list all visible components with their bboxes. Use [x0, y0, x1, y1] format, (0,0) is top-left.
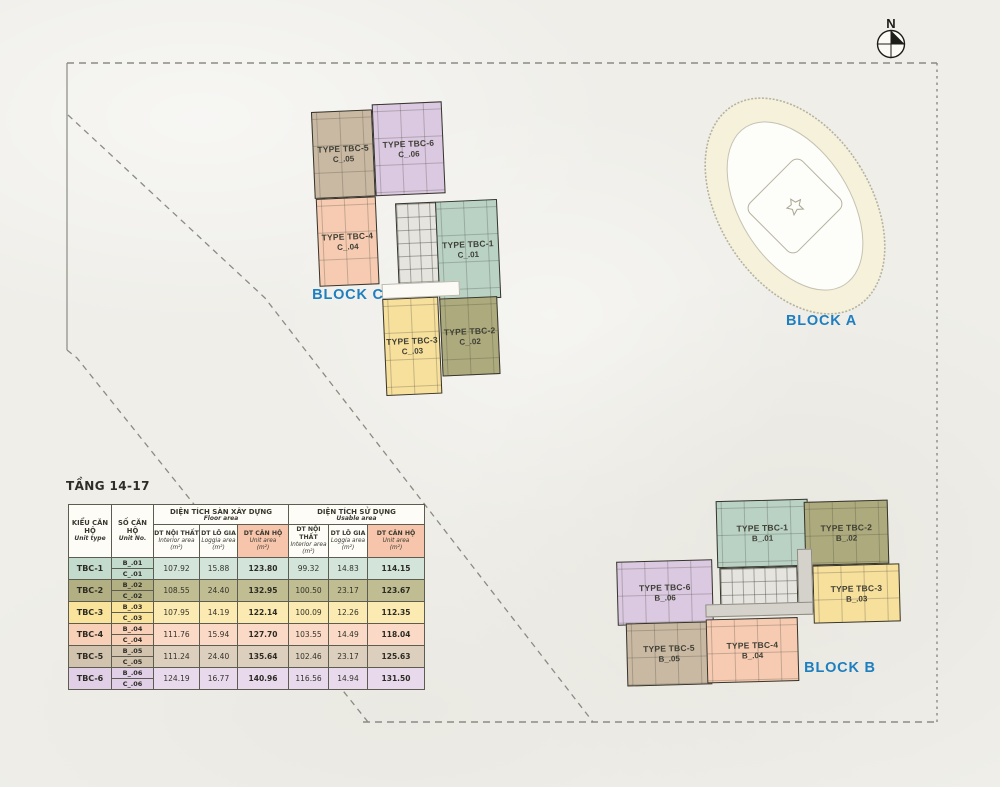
unit-b04-tbc4: TYPE TBC-4 B_.04: [706, 617, 800, 683]
header-group-floor-area: DIỆN TÍCH SÀN XÂY DỰNG Floor area: [154, 505, 289, 525]
unit-type-label: TYPE TBC-5: [643, 643, 695, 655]
row-unit-numbers: B_.04 C_.04: [112, 624, 154, 646]
unit-b05-tbc5: TYPE TBC-5 B_.05: [626, 621, 713, 686]
floor-loggia-value: 15.88: [200, 558, 238, 580]
sub-interior-unit: (m²): [289, 549, 328, 556]
header-group-usable-en: Usable area: [289, 516, 424, 522]
usable-loggia-value: 12.26: [329, 602, 368, 624]
usable-interior-value: 102.46: [289, 646, 329, 668]
row-unit-numbers: B_.01 C_.01: [112, 558, 154, 580]
unit-number-label: B_.04: [742, 650, 764, 660]
sub-interior-en: Interior area: [289, 542, 328, 549]
sub-unit-vi: DT CĂN HỘ: [377, 530, 416, 537]
sub-loggia-vi: DT LÔ GIA: [201, 530, 236, 537]
header-floor-interior: DT NỘI THẤT Interior area (m²): [154, 525, 200, 558]
sub-interior-vi: DT NỘI THẤT: [296, 526, 320, 541]
header-unit-no-vi: SỐ CĂN HỘ: [118, 519, 147, 535]
usable-unit-area-value: 125.63: [368, 646, 425, 668]
unit-area-table: KIỂU CĂN HỘ Unit type SỐ CĂN HỘ Unit No.…: [68, 504, 425, 690]
header-unit-type-vi: KIỂU CĂN HỘ: [72, 519, 108, 535]
floor-unit-area-value: 127.70: [238, 624, 289, 646]
unit-number-label: B_.06: [654, 593, 676, 603]
row-unit-numbers: B_.03 C_.03: [112, 602, 154, 624]
unit-no-c: C_.05: [112, 657, 153, 667]
block-a-outer-ellipse: [668, 66, 922, 347]
unit-type-label: TYPE TBC-4: [726, 639, 778, 651]
header-usable-interior: DT NỘI THẤT Interior area (m²): [289, 525, 329, 558]
sub-loggia-unit: (m²): [200, 545, 237, 552]
unit-no-b: B_.03: [112, 602, 153, 613]
compass-circle: [878, 31, 905, 58]
unit-no-b: B_.01: [112, 558, 153, 569]
sub-loggia-vi: DT LÔ GIA: [331, 530, 366, 537]
table-row-tbc6: TBC-6 B_.06 C_.06 124.19 16.77 140.96 11…: [69, 668, 425, 690]
unit-type-label: TYPE TBC-6: [639, 582, 691, 594]
unit-no-b: B_.06: [112, 668, 153, 679]
unit-number-label: C_.06: [398, 149, 420, 160]
table-row-tbc3: TBC-3 B_.03 C_.03 107.95 14.19 122.14 10…: [69, 602, 425, 624]
sub-unit-en: Unit area: [368, 538, 424, 545]
unit-number-label: B_.03: [846, 594, 868, 604]
unit-c06-tbc6: TYPE TBC-6 C_.06: [372, 101, 446, 196]
sub-unit-en: Unit area: [238, 538, 288, 545]
floor-interior-value: 107.92: [154, 558, 200, 580]
usable-unit-area-value: 118.04: [368, 624, 425, 646]
unit-number-label: B_.02: [836, 533, 858, 543]
floor-unit-area-value: 132.95: [238, 580, 289, 602]
usable-interior-value: 103.55: [289, 624, 329, 646]
floor-loggia-value: 24.40: [200, 646, 238, 668]
usable-loggia-value: 14.49: [329, 624, 368, 646]
unit-number-label: C_.04: [337, 242, 359, 253]
floor-interior-value: 124.19: [154, 668, 200, 690]
row-unit-type: TBC-3: [69, 602, 112, 624]
header-group-floor-en: Floor area: [154, 516, 288, 522]
unit-c03-tbc3: TYPE TBC-3 C_.03: [382, 297, 442, 396]
sub-unit-vi: DT CĂN HỘ: [244, 530, 283, 537]
table-row-tbc5: TBC-5 B_.05 C_.05 111.24 24.40 135.64 10…: [69, 646, 425, 668]
row-unit-numbers: B_.06 C_.06: [112, 668, 154, 690]
usable-loggia-value: 14.83: [329, 558, 368, 580]
unit-b06-tbc6: TYPE TBC-6 B_.06: [616, 559, 714, 625]
sub-loggia-unit: (m²): [329, 545, 367, 552]
usable-unit-area-value: 123.67: [368, 580, 425, 602]
header-floor-unit-area: DT CĂN HỘ Unit area (m²): [238, 525, 289, 558]
sub-loggia-en: Loggia area: [200, 538, 237, 545]
floor-interior-value: 111.24: [154, 646, 200, 668]
unit-number-label: C_.03: [402, 346, 424, 357]
usable-interior-value: 100.50: [289, 580, 329, 602]
floor-unit-area-value: 140.96: [238, 668, 289, 690]
usable-unit-area-value: 112.35: [368, 602, 425, 624]
row-unit-type: TBC-2: [69, 580, 112, 602]
usable-loggia-value: 14.94: [329, 668, 368, 690]
sub-unit-unit: (m²): [238, 545, 288, 552]
north-label: N: [886, 16, 895, 31]
unit-number-label: C_.01: [457, 250, 479, 261]
unit-no-b: B_.02: [112, 580, 153, 591]
sub-interior-unit: (m²): [154, 545, 199, 552]
header-usable-loggia: DT LÔ GIA Loggia area (m²): [329, 525, 368, 558]
unit-number-label: C_.05: [333, 154, 355, 165]
unit-no-c: C_.02: [112, 591, 153, 601]
block-c-label: BLOCK C: [312, 287, 384, 303]
unit-number-label: B_.01: [752, 534, 774, 544]
floor-loggia-value: 15.94: [200, 624, 238, 646]
header-unit-no-en: Unit No.: [112, 535, 153, 543]
unit-number-label: C_.02: [459, 336, 481, 347]
compass-north-pointer: [891, 31, 905, 45]
block-b-label: BLOCK B: [800, 660, 880, 676]
floor-interior-value: 111.76: [154, 624, 200, 646]
header-floor-loggia: DT LÔ GIA Loggia area (m²): [200, 525, 238, 558]
row-unit-numbers: B_.05 C_.05: [112, 646, 154, 668]
table-row-tbc4: TBC-4 B_.04 C_.04 111.76 15.94 127.70 10…: [69, 624, 425, 646]
unit-b01-tbc1: TYPE TBC-1 B_.01: [716, 499, 810, 568]
block-a-center-star: [784, 195, 806, 216]
table-group-header-row: KIỂU CĂN HỘ Unit type SỐ CĂN HỘ Unit No.…: [69, 505, 425, 525]
unit-b02-tbc2: TYPE TBC-2 B_.02: [804, 500, 890, 566]
unit-c05-tbc5: TYPE TBC-5 C_.05: [311, 109, 376, 199]
table-title: TẦNG 14-17: [66, 479, 150, 493]
unit-number-label: B_.05: [658, 654, 680, 664]
row-unit-type: TBC-4: [69, 624, 112, 646]
unit-no-b: B_.04: [112, 624, 153, 635]
unit-c02-tbc2: TYPE TBC-2 C_.02: [439, 296, 500, 376]
unit-type-label: TYPE TBC-2: [820, 522, 872, 534]
block-c-floor-plan: TYPE TBC-5 C_.05 TYPE TBC-6 C_.06 TYPE T…: [304, 96, 509, 401]
block-b-corridor-horizontal: [705, 602, 813, 618]
sub-interior-en: Interior area: [154, 538, 199, 545]
row-unit-type: TBC-6: [69, 668, 112, 690]
block-c-core: [395, 202, 440, 286]
header-usable-unit-area: DT CĂN HỘ Unit area (m²): [368, 525, 425, 558]
header-unit-no: SỐ CĂN HỘ Unit No.: [112, 505, 154, 558]
floor-interior-value: 108.55: [154, 580, 200, 602]
floor-loggia-value: 14.19: [200, 602, 238, 624]
usable-interior-value: 116.56: [289, 668, 329, 690]
unit-no-c: C_.06: [112, 679, 153, 689]
block-a-label: BLOCK A: [784, 313, 859, 329]
unit-no-c: C_.03: [112, 613, 153, 623]
row-unit-type: TBC-1: [69, 558, 112, 580]
usable-interior-value: 99.32: [289, 558, 329, 580]
floor-loggia-value: 16.77: [200, 668, 238, 690]
north-compass: N: [878, 16, 905, 58]
unit-no-b: B_.05: [112, 646, 153, 657]
block-a-inner-ellipse: [699, 98, 891, 314]
usable-loggia-value: 23.17: [329, 580, 368, 602]
floor-unit-area-value: 123.80: [238, 558, 289, 580]
sub-interior-vi: DT NỘI THẤT: [154, 530, 199, 537]
sub-unit-unit: (m²): [368, 545, 424, 552]
unit-type-label: TYPE TBC-3: [831, 583, 883, 595]
floor-unit-area-value: 135.64: [238, 646, 289, 668]
usable-unit-area-value: 131.50: [368, 668, 425, 690]
block-a-core-rect: [745, 156, 845, 256]
unit-no-c: C_.04: [112, 635, 153, 645]
floor-loggia-value: 24.40: [200, 580, 238, 602]
unit-b03-tbc3: TYPE TBC-3 B_.03: [812, 563, 900, 623]
row-unit-numbers: B_.02 C_.02: [112, 580, 154, 602]
unit-no-c: C_.01: [112, 569, 153, 579]
usable-interior-value: 100.09: [289, 602, 329, 624]
table-row-tbc1: TBC-1 B_.01 C_.01 107.92 15.88 123.80 99…: [69, 558, 425, 580]
header-group-usable-area: DIỆN TÍCH SỬ DỤNG Usable area: [289, 505, 425, 525]
floor-unit-area-value: 122.14: [238, 602, 289, 624]
floor-interior-value: 107.95: [154, 602, 200, 624]
header-unit-type: KIỂU CĂN HỘ Unit type: [69, 505, 112, 558]
table-row-tbc2: TBC-2 B_.02 C_.02 108.55 24.40 132.95 10…: [69, 580, 425, 602]
block-a-footprint: [668, 66, 922, 347]
row-unit-type: TBC-5: [69, 646, 112, 668]
unit-c04-tbc4: TYPE TBC-4 C_.04: [316, 196, 380, 287]
usable-loggia-value: 23.17: [329, 646, 368, 668]
header-unit-type-en: Unit type: [69, 535, 111, 543]
unit-type-label: TYPE TBC-1: [736, 523, 788, 535]
usable-unit-area-value: 114.15: [368, 558, 425, 580]
sub-loggia-en: Loggia area: [329, 538, 367, 545]
